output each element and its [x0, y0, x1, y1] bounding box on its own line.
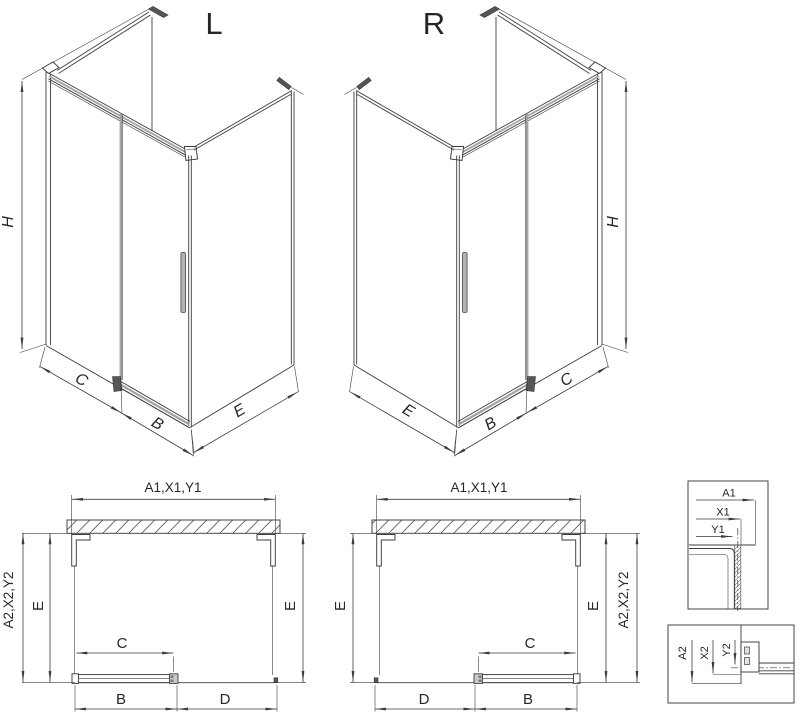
bottom-rail	[117, 379, 191, 422]
support-bar	[498, 12, 592, 74]
top-rail	[49, 79, 190, 158]
wall-hatch	[372, 520, 585, 533]
dim-label-a2: A2	[677, 646, 689, 659]
dim-line-side	[194, 392, 298, 453]
door-handle	[463, 253, 468, 313]
dim-label-fixed: C	[557, 370, 576, 391]
bottom-rail	[116, 382, 190, 425]
dim-label-x1: X1	[716, 507, 729, 519]
dim-label-total-width: A1,X1,Y1	[450, 480, 507, 495]
dim-label-height: H	[0, 216, 17, 228]
dim-label-side-left: E	[332, 601, 349, 611]
extension-line	[499, 9, 626, 80]
side-panel-top-edge	[194, 91, 292, 150]
shower-enclosure-diagram: L H	[0, 0, 800, 728]
support-bar	[57, 12, 151, 74]
dim-line-side	[350, 392, 454, 453]
wall-mount-cap	[480, 7, 500, 18]
dim-label-fixed: C	[72, 370, 91, 391]
door-end-profile	[72, 674, 79, 684]
wall-bracket-line	[345, 88, 357, 95]
extension-line	[375, 685, 577, 712]
wall-hatch	[67, 520, 280, 533]
wall-profile-left	[72, 535, 90, 567]
extension-line	[22, 533, 306, 682]
profile-cap	[43, 62, 60, 74]
dim-label-y1: Y1	[711, 524, 724, 536]
door-edge	[189, 156, 192, 428]
top-rail	[49, 76, 190, 155]
side-panel-rear-edge	[354, 90, 357, 365]
door-end-cap	[474, 674, 483, 684]
top-rail	[458, 76, 599, 155]
bottom-rail	[459, 382, 533, 425]
wall-bracket	[277, 77, 291, 89]
bracket-slot	[745, 658, 750, 665]
corner-connector	[374, 678, 378, 683]
side-panel-top-edge	[357, 91, 455, 150]
dim-label-fixed-panel: D	[220, 691, 231, 708]
bottom-rail	[459, 385, 533, 428]
extension-line	[22, 9, 149, 80]
detail-bottom-rail: A2 X2 Y2	[668, 625, 794, 703]
iso-view-left: L H	[0, 6, 304, 457]
top-rail	[459, 79, 600, 158]
rail-bracket	[741, 642, 759, 672]
wall-profile-left	[377, 535, 395, 567]
variant-label-left: L	[205, 6, 222, 41]
bracket-slot	[745, 647, 750, 654]
extension-line	[455, 430, 457, 457]
dim-label-total-depth: A2,X2,Y2	[616, 571, 631, 628]
dim-label-a1: A1	[722, 488, 735, 500]
dim-label-door-glass: C	[525, 635, 536, 652]
bottom-rail-end-block	[526, 377, 536, 392]
dim-label-y2: Y2	[721, 643, 733, 656]
extension-line	[191, 430, 193, 457]
wall-profile-right	[257, 535, 275, 567]
wall-profile-right	[562, 535, 580, 567]
extension-line	[20, 344, 47, 353]
detail-wall-profile: A1 X1 Y1	[688, 481, 768, 611]
dim-label-side-right: E	[282, 601, 299, 611]
top-rail	[48, 81, 189, 159]
plan-view-left: A1,X1,Y1 C E A2,X2,Y2 E B D	[1, 480, 306, 712]
dim-label-fixed-panel: D	[419, 691, 430, 708]
bottom-rail	[458, 379, 532, 422]
door-end-cap-mark	[171, 680, 174, 682]
wall-profile	[598, 72, 603, 345]
door-end-cap-mark	[479, 676, 482, 678]
dim-label-side: E	[231, 401, 249, 421]
wall-mount-cap	[149, 7, 169, 18]
door-end-cap	[170, 674, 179, 684]
bottom-rail-end-block	[113, 377, 123, 392]
dim-label-door: B	[482, 414, 500, 434]
dim-label-side-left: E	[30, 601, 47, 611]
side-panel-rear-edge	[291, 90, 294, 365]
dim-label-height: H	[605, 216, 622, 228]
dim-label-door-glass: C	[117, 635, 128, 652]
door-edge	[457, 156, 460, 428]
extension-line	[75, 685, 277, 712]
dim-label-door-rail: B	[523, 691, 533, 708]
dim-label-door-rail: B	[116, 691, 126, 708]
dim-label-total-depth: A2,X2,Y2	[1, 571, 16, 628]
corner-connector	[274, 678, 278, 683]
dim-label-x2: X2	[699, 646, 711, 659]
dim-label-side: E	[399, 401, 417, 421]
dim-label-side-right: E	[585, 601, 602, 611]
profile-cap	[589, 62, 606, 74]
dim-label-total-width: A1,X1,Y1	[144, 480, 201, 495]
door-end-cap-mark	[479, 680, 482, 682]
door-end-cap-mark	[171, 676, 174, 678]
technical-drawing-page: L H	[0, 0, 800, 728]
wall-bracket-line	[292, 88, 304, 95]
wall-bracket	[357, 77, 371, 89]
top-rail	[459, 81, 600, 159]
dim-label-door: B	[148, 414, 166, 434]
detail-box	[668, 625, 794, 703]
door-end-profile	[574, 674, 581, 684]
plan-view-right: A1,X1,Y1 C E E A2,X2,Y2 D B	[332, 480, 640, 712]
extension-line	[602, 344, 629, 353]
variant-label-right: R	[423, 6, 445, 41]
wall-profile	[46, 72, 51, 345]
door-handle	[181, 253, 186, 313]
iso-view-right: R H E C B	[345, 6, 629, 457]
